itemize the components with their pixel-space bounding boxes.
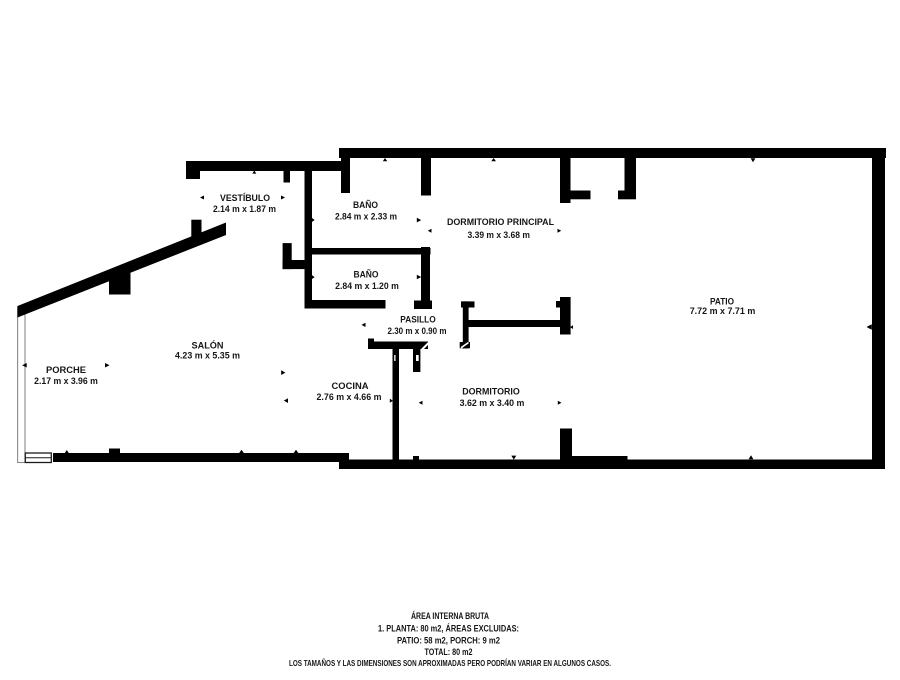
svg-text:3.62 m x 3.40 m: 3.62 m x 3.40 m: [460, 398, 525, 408]
svg-text:TOTAL: 80 m2: TOTAL: 80 m2: [425, 647, 473, 657]
svg-text:ÁREA INTERNA BRUTA: ÁREA INTERNA BRUTA: [411, 611, 489, 621]
svg-text:LOS TAMAÑOS Y LAS DIMENSIONES: LOS TAMAÑOS Y LAS DIMENSIONES SON APROXI…: [289, 658, 611, 668]
svg-text:PATIO: 58 m2, PORCH: 9 m2: PATIO: 58 m2, PORCH: 9 m2: [397, 636, 500, 646]
svg-text:2.30 m x 0.90 m: 2.30 m x 0.90 m: [388, 326, 447, 336]
svg-text:1. PLANTA: 80 m2, ÁREAS EXCLUI: 1. PLANTA: 80 m2, ÁREAS EXCLUIDAS:: [378, 624, 519, 634]
svg-text:BAÑO: BAÑO: [353, 200, 378, 210]
svg-text:PORCHE: PORCHE: [46, 365, 86, 375]
svg-text:SALÓN: SALÓN: [192, 340, 224, 351]
svg-text:2.17 m x 3.96 m: 2.17 m x 3.96 m: [34, 376, 98, 386]
svg-text:PATIO: PATIO: [710, 296, 734, 306]
svg-text:2.84 m x 2.33 m: 2.84 m x 2.33 m: [335, 212, 397, 222]
svg-text:3.39 m x 3.68 m: 3.39 m x 3.68 m: [468, 230, 530, 240]
svg-text:BAÑO: BAÑO: [354, 270, 379, 280]
svg-text:2.76 m x 4.66 m: 2.76 m x 4.66 m: [317, 392, 382, 402]
svg-text:COCINA: COCINA: [332, 381, 369, 391]
svg-text:PASILLO: PASILLO: [400, 315, 435, 325]
svg-text:DORMITORIO PRINCIPAL: DORMITORIO PRINCIPAL: [447, 217, 554, 227]
svg-text:7.72 m x 7.71 m: 7.72 m x 7.71 m: [690, 306, 756, 316]
svg-text:4.23 m x 5.35 m: 4.23 m x 5.35 m: [175, 351, 240, 361]
svg-text:VESTÍBULO: VESTÍBULO: [220, 193, 270, 203]
svg-text:2.14 m x 1.87 m: 2.14 m x 1.87 m: [213, 204, 276, 214]
svg-text:2.84 m x 1.20 m: 2.84 m x 1.20 m: [335, 281, 399, 291]
svg-text:DORMITORIO: DORMITORIO: [462, 387, 520, 397]
